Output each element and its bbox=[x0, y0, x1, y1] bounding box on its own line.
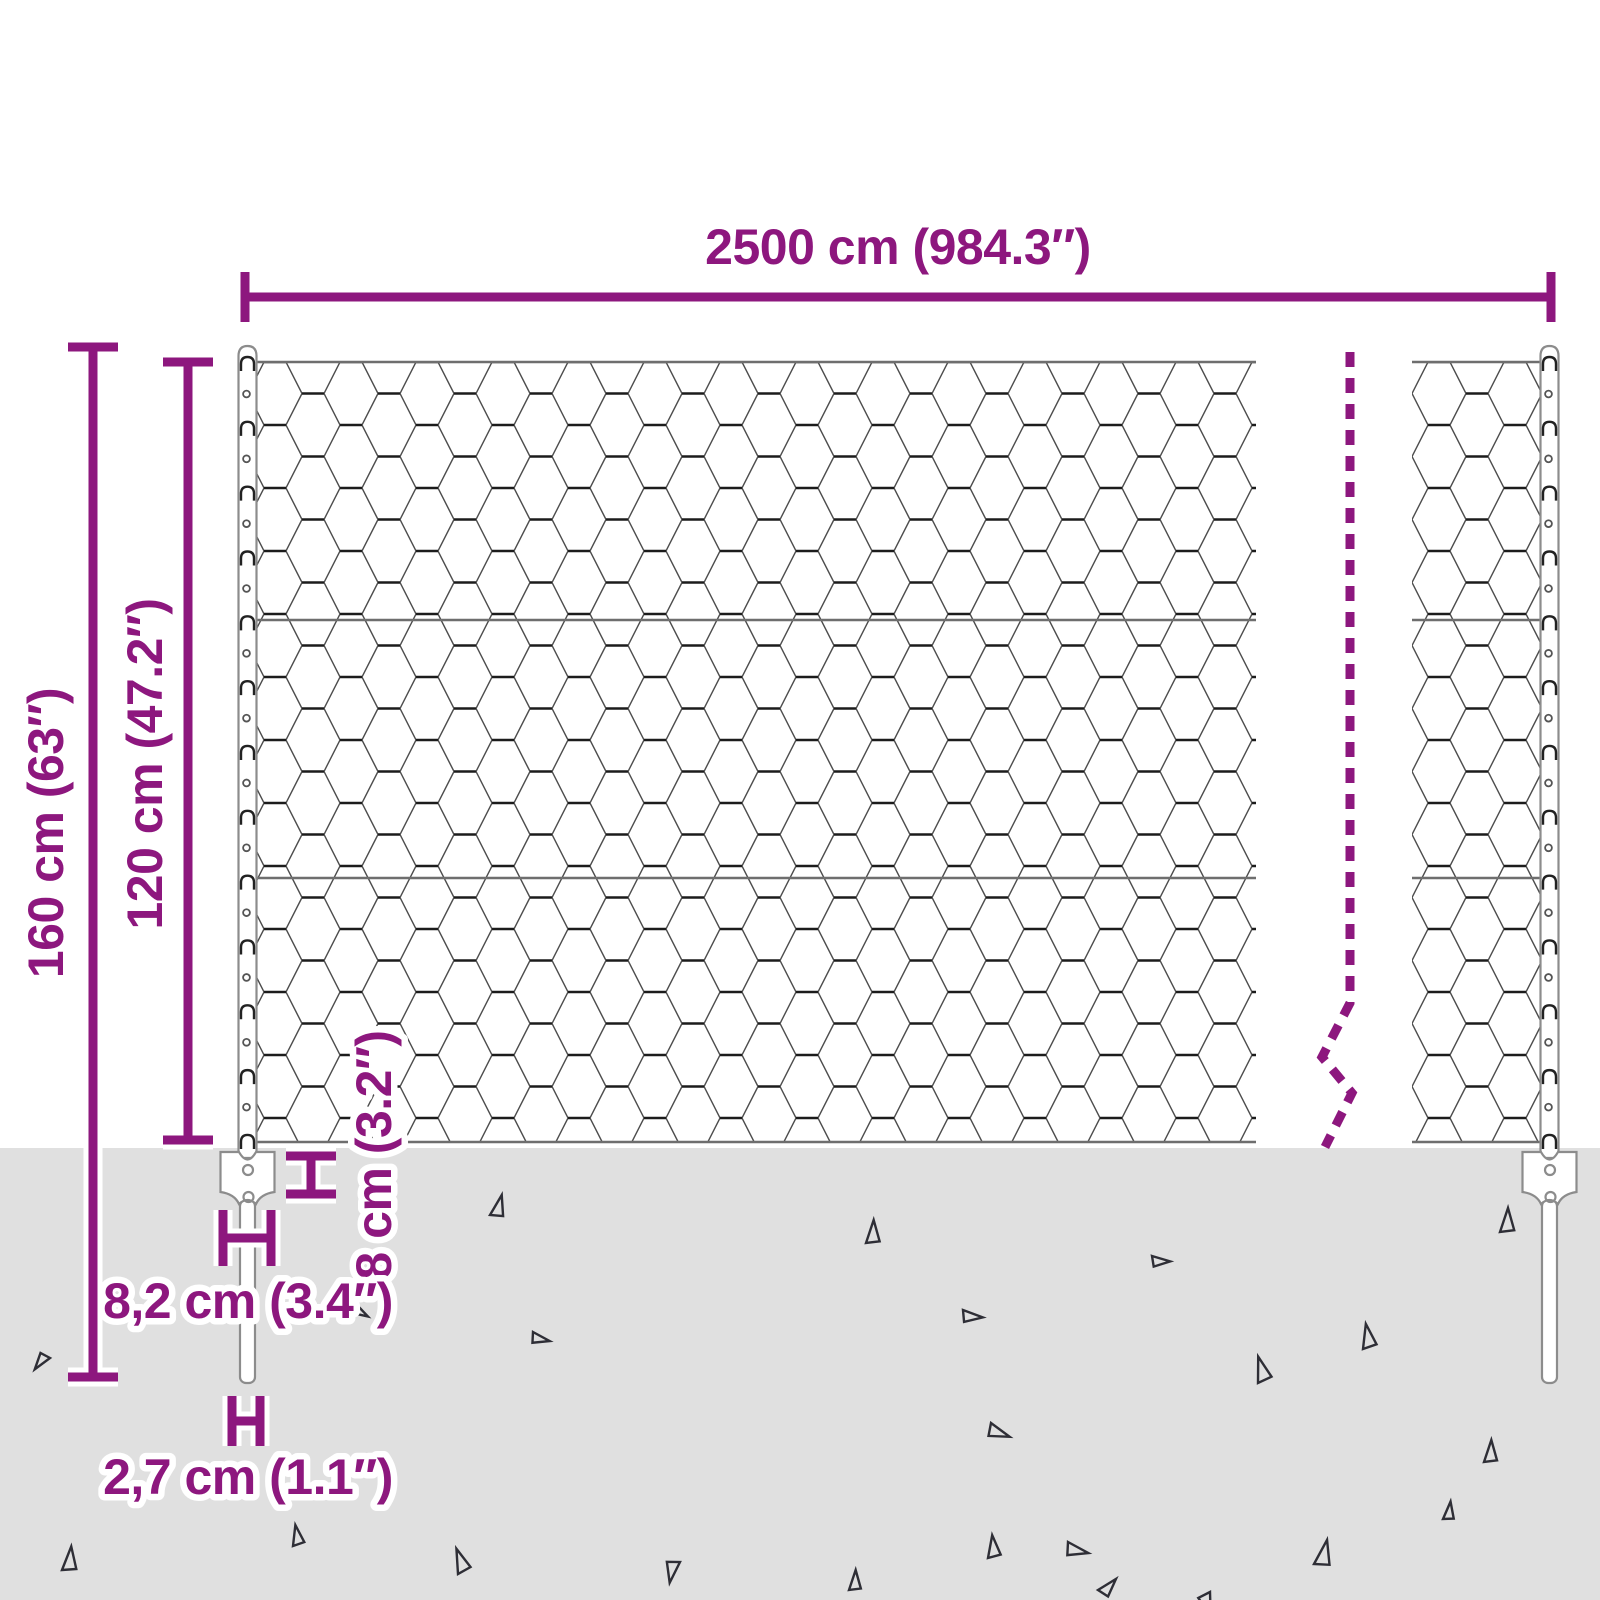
label-fence-width: 2500 cm (984.3″) bbox=[705, 219, 1091, 275]
label-anchor-width: 8,2 cm (3.4″) bbox=[103, 1273, 393, 1329]
label-mesh-height: 120 cm (47.2″) bbox=[117, 598, 173, 929]
post-ground-spike bbox=[1542, 1200, 1557, 1383]
mesh-panel-small bbox=[1412, 362, 1558, 1142]
fence-dimension-diagram-page: 2500 cm (984.3″) 160 cm (63″) 120 cm (47… bbox=[0, 0, 1600, 1600]
label-spike-width: 2,7 cm (1.1″) bbox=[103, 1449, 393, 1505]
label-anchor-height: 8 cm (3.2″) bbox=[346, 1030, 402, 1279]
mesh-panel-main bbox=[248, 362, 1256, 1142]
diagram-canvas: 2500 cm (984.3″) 160 cm (63″) 120 cm (47… bbox=[0, 0, 1600, 1600]
label-post-height: 160 cm (63″) bbox=[18, 688, 74, 978]
